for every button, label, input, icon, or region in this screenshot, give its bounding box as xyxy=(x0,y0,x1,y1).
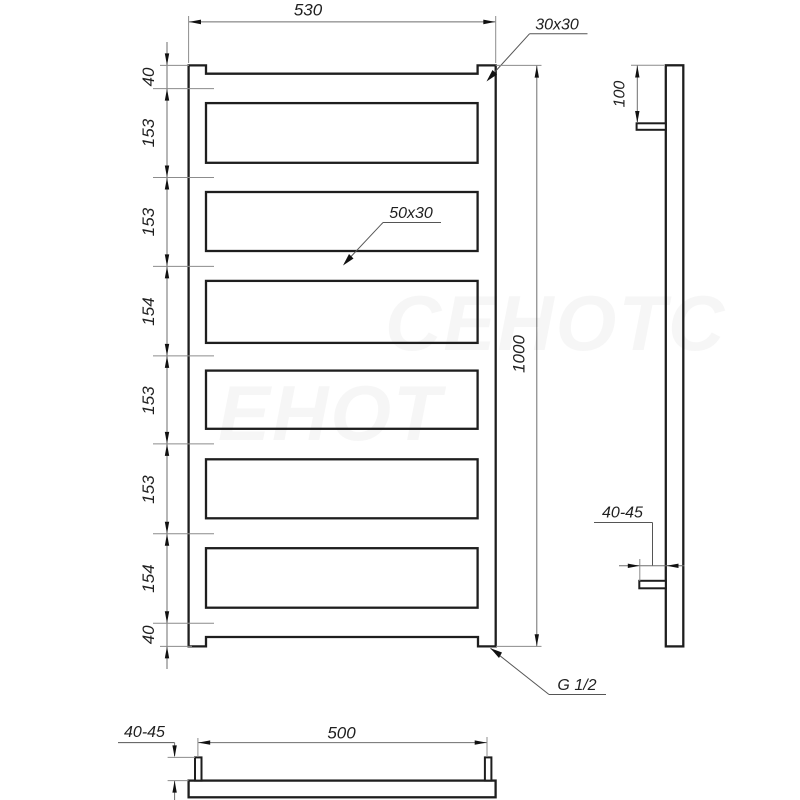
svg-text:530: 530 xyxy=(294,1,323,20)
svg-text:100: 100 xyxy=(612,81,629,108)
svg-text:30x30: 30x30 xyxy=(535,17,579,34)
svg-text:153: 153 xyxy=(139,118,158,147)
svg-text:153: 153 xyxy=(139,475,158,504)
svg-text:154: 154 xyxy=(139,564,158,592)
svg-text:500: 500 xyxy=(327,724,356,743)
svg-text:50x30: 50x30 xyxy=(389,205,433,222)
svg-text:40: 40 xyxy=(139,625,158,644)
svg-text:G 1/2: G 1/2 xyxy=(557,677,596,694)
svg-text:СЕНОТС: СЕНОТС xyxy=(385,279,726,367)
svg-text:40: 40 xyxy=(139,67,158,86)
svg-text:153: 153 xyxy=(139,207,158,236)
svg-text:40-45: 40-45 xyxy=(602,505,643,522)
svg-text:ЕНОТ: ЕНОТ xyxy=(218,369,447,457)
svg-text:154: 154 xyxy=(139,297,158,325)
svg-text:153: 153 xyxy=(139,386,158,415)
svg-text:40-45: 40-45 xyxy=(124,724,165,741)
